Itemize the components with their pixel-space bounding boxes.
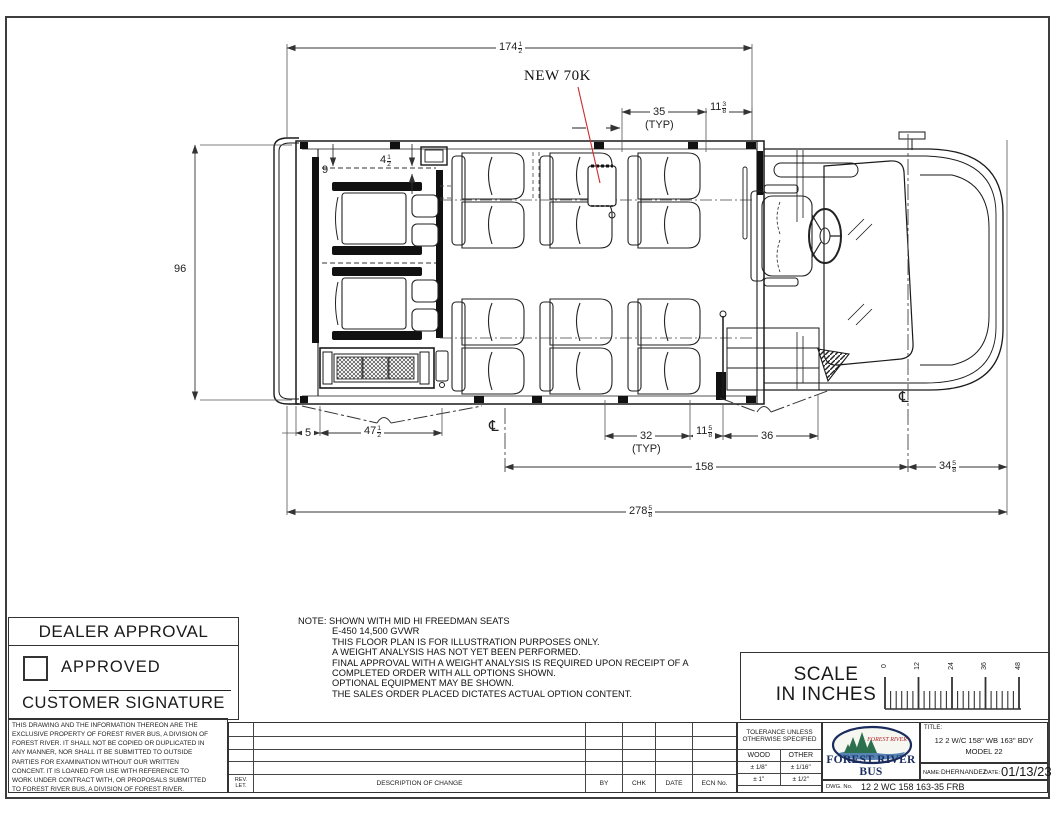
legal-notice: THIS DRAWING AND THE INFORMATION THEREON… xyxy=(8,718,228,793)
rev-cell xyxy=(655,723,692,736)
dwg-number: 12 2 WC 158 163-35 FRB xyxy=(861,782,965,792)
dealer-approval-header: DEALER APPROVAL xyxy=(8,617,239,647)
rev-cell xyxy=(229,761,253,774)
rev-cell xyxy=(655,736,692,749)
legal-line: WORK UNDER CONTRACT WITH, OR PROPOSALS S… xyxy=(12,776,227,785)
rev-cell xyxy=(622,736,655,749)
bus-floor-plan xyxy=(0,0,1056,612)
legal-line: TO FOREST RIVER BUS, A DIVISION OF FORES… xyxy=(12,785,227,794)
dim-seat-pitch-top-typ: (TYP) xyxy=(645,119,674,131)
steering-wheel xyxy=(809,209,841,263)
drawing-sheet: 17412 NEW 70K 35 (TYP) 1138 96 9 412 5 4… xyxy=(0,0,1056,816)
rev-cell xyxy=(253,723,585,736)
rev-cell xyxy=(229,749,253,762)
note-line: THE SALES ORDER PLACED DICTATES ACTUAL O… xyxy=(298,689,698,699)
rev-cell xyxy=(229,723,253,736)
dim-lift-door: 4712 xyxy=(361,425,384,439)
rear-door-swing xyxy=(302,406,482,423)
dim-front-overhang: 3458 xyxy=(936,460,959,474)
tolerance-other-2: ± 1/2" xyxy=(780,774,822,786)
ruler-tick-0: 0 xyxy=(881,657,889,675)
tolerance-wood-2: ± 1" xyxy=(738,774,780,786)
scale-ruler xyxy=(881,659,1031,715)
rev-cell xyxy=(585,749,622,762)
legal-line: CONCENT. IT IS LOANED FOR USE WITH REFER… xyxy=(12,767,227,776)
dwg-number-row: DWG. No. 12 2 WC 158 163-35 FRB xyxy=(822,780,1048,793)
chk-header: CHK xyxy=(622,774,655,792)
axle-centerlines xyxy=(505,134,908,472)
rev-let-header: REV.LET. xyxy=(229,774,253,792)
dim-rear-offset: 5 xyxy=(302,427,314,439)
title-label: TITLE: xyxy=(924,725,942,731)
dealer-approval-box: APPROVED CUSTOMER SIGNATURE xyxy=(8,645,239,720)
by-header: BY xyxy=(585,774,622,792)
signature-line[interactable] xyxy=(49,690,231,691)
rev-cell xyxy=(622,749,655,762)
logo-text: FOREST RIVER xyxy=(866,737,907,743)
name-label: NAME: xyxy=(923,770,941,776)
tolerance-other-1: ± 1/16" xyxy=(780,762,822,774)
rev-cell xyxy=(692,723,736,736)
centerline-symbol-front: ℄ xyxy=(899,388,909,406)
rev-cell xyxy=(692,736,736,749)
tolerance-block: TOLERANCE UNLESSOTHERWISE SPECIFIED WOOD… xyxy=(737,722,822,793)
callout-new-70k: NEW 70K xyxy=(524,68,591,85)
ruler-tick-12: 12 xyxy=(914,657,922,675)
note-line: OPTIONAL EQUIPMENT MAY BE SHOWN. xyxy=(298,678,698,688)
date-value: 01/13/23 xyxy=(1001,764,1052,779)
ruler-tick-36: 36 xyxy=(981,657,989,675)
ecn-header: ECN No. xyxy=(692,774,736,792)
scale-label: SCALEIN INCHES xyxy=(751,665,901,705)
note-line: FINAL APPROVAL WITH A WEIGHT ANALYSIS IS… xyxy=(298,658,698,668)
notes-block: NOTE: SHOWN WITH MID HI FREEDMAN SEATS E… xyxy=(298,616,698,699)
note-line: NOTE: SHOWN WITH MID HI FREEDMAN SEATS xyxy=(298,616,698,626)
legal-line: FOREST RIVER. IT SHALL NOT BE COPIED OR … xyxy=(12,739,227,748)
wheelchair-area xyxy=(312,157,443,343)
drawing-title-line2: MODEL 22 xyxy=(921,747,1047,756)
dim-wc-offset: 9 xyxy=(322,164,328,176)
note-line: A WEIGHT ANALYSIS HAS NOT YET BEEN PERFO… xyxy=(298,647,698,657)
cab-front xyxy=(743,132,1003,390)
date-header: DATE xyxy=(655,774,692,792)
dim-body-width: 96 xyxy=(174,263,186,275)
legal-line: THIS DRAWING AND THE INFORMATION THEREON… xyxy=(12,721,227,730)
revision-table: REV.LET. DESCRIPTION OF CHANGE BY CHK DA… xyxy=(228,722,737,793)
dwg-label: DWG. No. xyxy=(826,784,852,790)
rev-cell xyxy=(655,749,692,762)
dim-entry-door: 36 xyxy=(758,430,776,442)
scale-box: SCALEIN INCHES xyxy=(740,652,1050,720)
tolerance-col-wood: WOOD xyxy=(738,750,780,762)
dim-seat-pitch-bottom: 32 xyxy=(637,430,655,442)
rev-cell xyxy=(585,761,622,774)
front-door-swing xyxy=(720,390,830,412)
rev-cell xyxy=(585,736,622,749)
date-label: DATE: xyxy=(984,770,1000,776)
driver-seat xyxy=(751,185,841,286)
dim-seat-pitch-bottom-typ: (TYP) xyxy=(632,443,661,455)
tolerance-col-other: OTHER xyxy=(780,750,822,762)
approved-label: APPROVED xyxy=(61,658,161,677)
extension-lines xyxy=(200,44,1007,515)
note-line: THIS FLOOR PLAN IS FOR ILLUSTRATION PURP… xyxy=(298,637,698,647)
dim-wc-gap: 412 xyxy=(380,154,391,168)
logo-cell: FOREST RIVER FOREST RIVER BUS xyxy=(822,722,920,780)
rev-cell xyxy=(692,761,736,774)
drawing-title-line1: 12 2 W/C 158" WB 163" BDY xyxy=(921,736,1047,745)
rev-cell xyxy=(692,749,736,762)
brand-name: FOREST RIVER BUS xyxy=(823,754,919,778)
wheelchair-2 xyxy=(332,267,438,340)
dim-mid-gap: 1158 xyxy=(693,425,715,439)
rev-cell xyxy=(622,761,655,774)
rev-cell xyxy=(253,749,585,762)
dim-wheelbase: 158 xyxy=(692,461,716,473)
legal-line: ANY MANNER, NOR SHALL IT BE SUBMITTED TO… xyxy=(12,748,227,757)
note-line: E-450 14,500 GVWR xyxy=(298,626,698,636)
legal-line: PARTIES FOR EXAMINATION WITHOUT OUR WRIT… xyxy=(12,758,227,767)
ruler-tick-24: 24 xyxy=(948,657,956,675)
roof-hatch xyxy=(421,147,447,165)
title-cell: TITLE: 12 2 W/C 158" WB 163" BDY MODEL 2… xyxy=(920,722,1048,763)
legal-line: EXCLUSIVE PROPERTY OF FOREST RIVER BUS, … xyxy=(12,730,227,739)
rev-cell xyxy=(622,723,655,736)
rev-cell xyxy=(655,761,692,774)
tolerance-title: TOLERANCE UNLESSOTHERWISE SPECIFIED xyxy=(738,723,821,750)
dim-seat-pitch-top: 35 xyxy=(650,106,668,118)
dim-overall-top: 17412 xyxy=(496,41,525,55)
customer-signature-label: CUSTOMER SIGNATURE xyxy=(9,694,238,713)
wheelchair-1 xyxy=(332,182,438,255)
tolerance-wood-1: ± 1/8" xyxy=(738,762,780,774)
centerline-symbol-rear: ℄ xyxy=(489,417,499,435)
rev-cell xyxy=(229,736,253,749)
description-header: DESCRIPTION OF CHANGE xyxy=(253,774,585,792)
note-line: COMPLETED ORDER WITH ALL OPTIONS SHOWN. xyxy=(298,668,698,678)
rev-cell xyxy=(253,736,585,749)
wheelchair-lift xyxy=(320,348,448,388)
dim-overall-length: 27858 xyxy=(626,505,655,519)
rev-cell xyxy=(585,723,622,736)
approved-checkbox[interactable] xyxy=(23,656,48,681)
dim-front-top: 1138 xyxy=(707,101,729,115)
ruler-tick-48: 48 xyxy=(1015,657,1023,675)
name-value: DHERNANDEZ xyxy=(941,769,987,776)
name-date-row: NAME: DHERNANDEZ DATE: 01/13/23 xyxy=(920,763,1048,780)
rev-cell xyxy=(253,761,585,774)
